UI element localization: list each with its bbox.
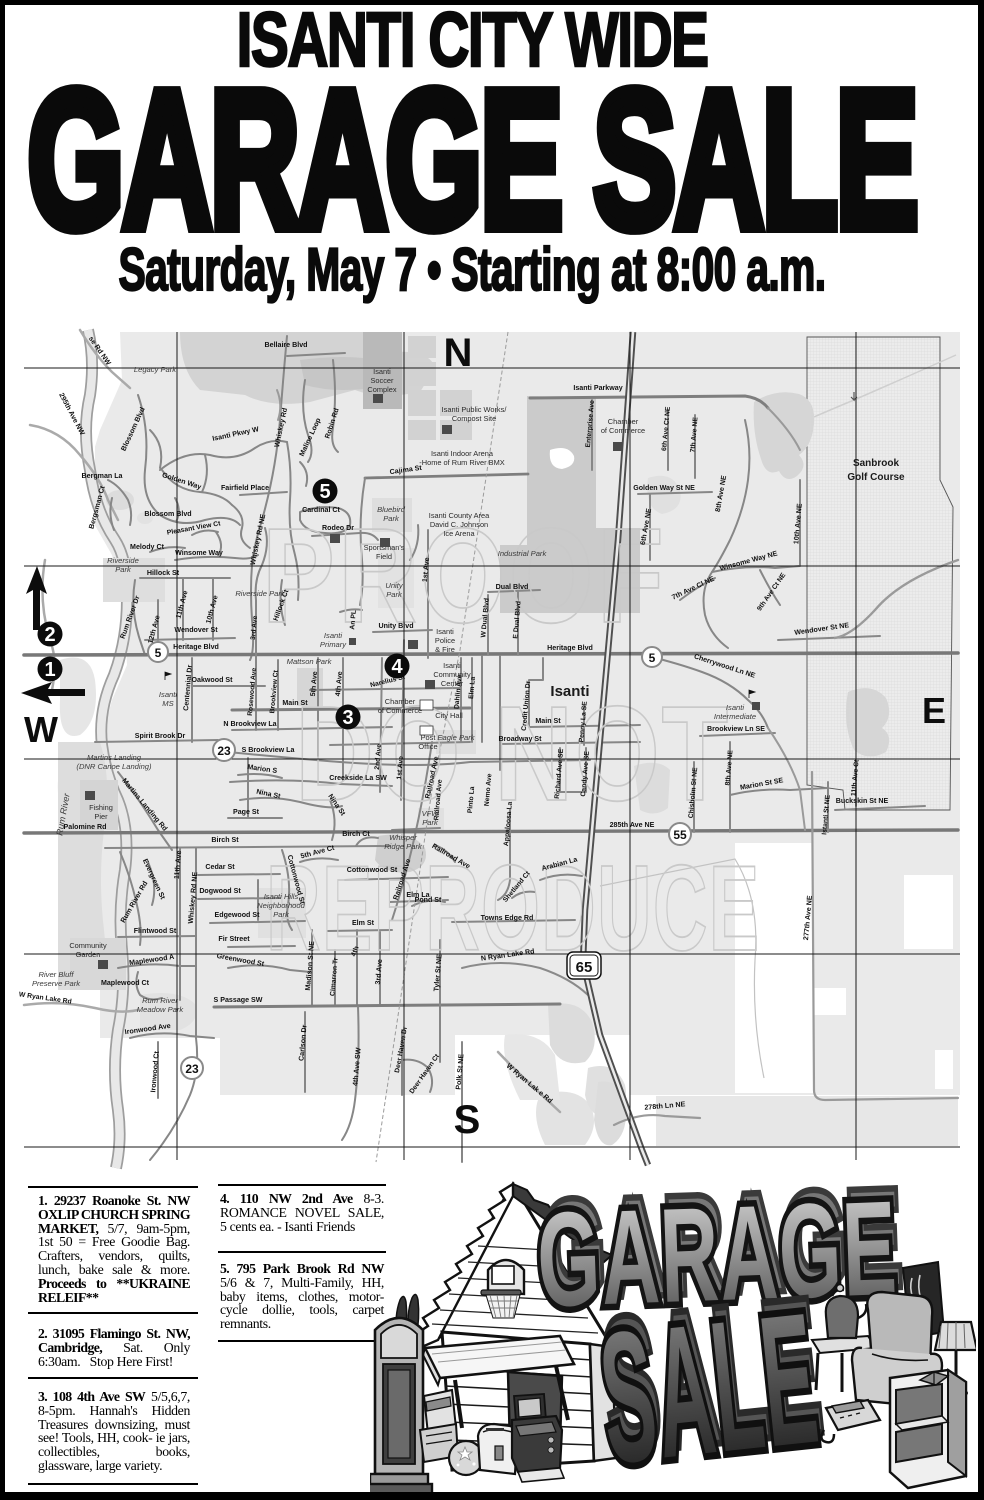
svg-text:23: 23: [185, 1062, 199, 1076]
svg-text:S Passage SW: S Passage SW: [214, 996, 263, 1004]
svg-text:Sanbrook: Sanbrook: [853, 458, 900, 469]
svg-text:Isanti: Isanti: [726, 703, 744, 712]
svg-text:Elm St: Elm St: [352, 919, 375, 927]
svg-text:Isanti Public Works/: Isanti Public Works/: [442, 405, 508, 414]
svg-text:VFW: VFW: [422, 809, 440, 818]
svg-text:65: 65: [576, 959, 593, 976]
svg-text:3: 3: [342, 707, 353, 729]
svg-text:City Hall: City Hall: [435, 711, 463, 720]
svg-text:of Commerce: of Commerce: [601, 426, 645, 435]
svg-text:Community: Community: [433, 670, 471, 679]
svg-text:Golden Way St NE: Golden Way St NE: [633, 484, 695, 492]
svg-text:Isanti: Isanti: [373, 367, 391, 376]
svg-text:55: 55: [673, 828, 687, 842]
svg-text:Bluebird: Bluebird: [377, 505, 406, 514]
svg-text:Cedar St: Cedar St: [205, 863, 235, 871]
svg-text:SALE: SALE: [592, 1275, 828, 1492]
svg-text:Intermediate: Intermediate: [714, 712, 756, 721]
svg-text:Bellaire Blvd: Bellaire Blvd: [265, 341, 308, 349]
svg-text:Park: Park: [383, 514, 400, 523]
svg-text:Meadow Park: Meadow Park: [137, 1005, 185, 1014]
svg-text:Park: Park: [273, 910, 290, 919]
svg-text:Golf Course: Golf Course: [847, 472, 905, 483]
svg-text:E: E: [922, 690, 946, 731]
svg-text:Cottonwood St: Cottonwood St: [347, 866, 398, 874]
svg-text:Oakwood St: Oakwood St: [192, 676, 234, 684]
svg-text:N Brookview La: N Brookview La: [223, 720, 276, 728]
svg-text:Chamber: Chamber: [608, 417, 639, 426]
svg-text:Field: Field: [376, 552, 392, 561]
svg-text:Park: Park: [115, 565, 132, 574]
svg-text:Eagle Park: Eagle Park: [437, 733, 475, 742]
svg-text:Flintwood St: Flintwood St: [134, 927, 177, 935]
svg-text:Primary: Primary: [320, 640, 347, 649]
svg-text:Unity Blvd: Unity Blvd: [378, 622, 413, 630]
svg-text:Center: Center: [441, 679, 464, 688]
svg-text:Isanti County Area: Isanti County Area: [429, 511, 490, 520]
svg-text:W: W: [24, 709, 58, 750]
svg-text:5: 5: [155, 646, 162, 660]
svg-text:& Fire: & Fire: [435, 645, 455, 654]
svg-text:5: 5: [649, 651, 656, 665]
svg-text:Fishing: Fishing: [89, 803, 113, 812]
svg-text:David C. Johnson: David C. Johnson: [430, 520, 488, 529]
svg-text:Page St: Page St: [233, 808, 260, 816]
svg-text:-Home of Rum River BMX: -Home of Rum River BMX: [419, 458, 504, 467]
svg-text:Main St: Main St: [282, 699, 308, 707]
svg-text:Riverside: Riverside: [107, 556, 139, 565]
svg-text:Dual Blvd: Dual Blvd: [496, 583, 529, 591]
svg-text:Towns Edge Rd: Towns Edge Rd: [481, 914, 534, 922]
svg-text:Rodeo Dr: Rodeo Dr: [322, 524, 354, 532]
svg-text:Maplewood Ct: Maplewood Ct: [101, 979, 150, 987]
svg-text:Creekside La SW: Creekside La SW: [329, 774, 387, 782]
svg-text:Isanti Hills: Isanti Hills: [264, 892, 299, 901]
svg-text:Heritage Blvd: Heritage Blvd: [547, 644, 593, 652]
svg-text:Main St: Main St: [535, 717, 561, 725]
svg-text:Isanti: Isanti: [550, 683, 589, 700]
svg-text:Isanti Parkway: Isanti Parkway: [573, 384, 622, 392]
svg-text:S Brookview La: S Brookview La: [242, 746, 295, 754]
svg-text:Soccer: Soccer: [370, 376, 394, 385]
svg-text:Wendover St: Wendover St: [174, 626, 218, 634]
svg-text:Melody Ct: Melody Ct: [130, 543, 165, 551]
svg-text:5: 5: [319, 481, 330, 503]
svg-text:Park: Park: [422, 818, 439, 827]
svg-text:Unity: Unity: [385, 581, 404, 590]
svg-text:Neighborhood: Neighborhood: [257, 901, 305, 910]
svg-text:Spirit Brook Dr: Spirit Brook Dr: [135, 732, 186, 740]
svg-text:Pier: Pier: [94, 812, 108, 821]
svg-text:Mattson Park: Mattson Park: [287, 657, 333, 666]
svg-text:Community: Community: [69, 941, 107, 950]
svg-text:Legacy Park: Legacy Park: [134, 365, 177, 374]
svg-text:Whisper: Whisper: [389, 833, 417, 842]
svg-text:285th Ave NE: 285th Ave NE: [610, 821, 655, 829]
svg-text:2: 2: [44, 624, 55, 646]
svg-text:Fir Street: Fir Street: [218, 935, 250, 943]
svg-text:Isanti: Isanti: [324, 631, 342, 640]
svg-text:Office: Office: [418, 742, 437, 751]
svg-text:Birch St: Birch St: [211, 836, 239, 844]
svg-text:23: 23: [217, 744, 231, 758]
svg-text:Broadway St: Broadway St: [499, 735, 543, 743]
svg-text:MS: MS: [162, 699, 173, 708]
svg-text:Martins Landing: Martins Landing: [87, 753, 142, 762]
svg-text:Winsome Way: Winsome Way: [175, 549, 223, 557]
svg-text:Garden: Garden: [76, 950, 101, 959]
svg-text:Ridge Park: Ridge Park: [384, 842, 423, 851]
svg-text:Palomine Rd: Palomine Rd: [64, 823, 107, 831]
svg-text:Preserve Park: Preserve Park: [32, 979, 81, 988]
svg-text:Chamber: Chamber: [385, 697, 416, 706]
svg-text:Complex: Complex: [367, 385, 396, 394]
svg-text:4: 4: [391, 656, 403, 678]
svg-text:Blossom Blvd: Blossom Blvd: [144, 510, 191, 518]
svg-text:Compost Site: Compost Site: [452, 414, 496, 423]
svg-text:Hillock St: Hillock St: [147, 569, 180, 577]
svg-text:Dogwood St: Dogwood St: [199, 887, 241, 895]
svg-text:Fairfield Place: Fairfield Place: [221, 484, 269, 492]
svg-text:Edgewood St: Edgewood St: [215, 911, 261, 919]
svg-text:Birch Ct: Birch Ct: [342, 830, 370, 838]
svg-text:Isanti Indoor Arena: Isanti Indoor Arena: [431, 449, 494, 458]
svg-text:S: S: [454, 1098, 481, 1142]
svg-text:Riverside Park: Riverside Park: [235, 589, 286, 598]
svg-text:1: 1: [44, 659, 55, 681]
svg-text:Brookview Ln SE: Brookview Ln SE: [707, 725, 765, 733]
svg-text:Isanti: Isanti: [159, 690, 177, 699]
svg-text:Bergman La: Bergman La: [82, 472, 123, 480]
svg-text:of Commerce: of Commerce: [378, 706, 422, 715]
svg-text:Buckskin St NE: Buckskin St NE: [836, 797, 889, 805]
svg-text:River Bluff: River Bluff: [38, 970, 74, 979]
svg-text:Isanti: Isanti: [436, 627, 454, 636]
svg-text:N: N: [444, 331, 473, 375]
svg-text:Isanti: Isanti: [443, 661, 461, 670]
svg-text:Police: Police: [435, 636, 455, 645]
svg-text:Rum River: Rum River: [142, 996, 178, 1005]
svg-text:Heritage Blvd: Heritage Blvd: [173, 643, 219, 651]
svg-text:Ice Arena: Ice Arena: [443, 529, 475, 538]
svg-text:(DNR Canoe Landing): (DNR Canoe Landing): [76, 762, 152, 771]
svg-text:Cardinal Ct: Cardinal Ct: [302, 506, 340, 514]
svg-text:Pond St: Pond St: [415, 896, 442, 904]
svg-text:Park: Park: [386, 590, 403, 599]
svg-text:Industrial Park: Industrial Park: [498, 549, 548, 558]
